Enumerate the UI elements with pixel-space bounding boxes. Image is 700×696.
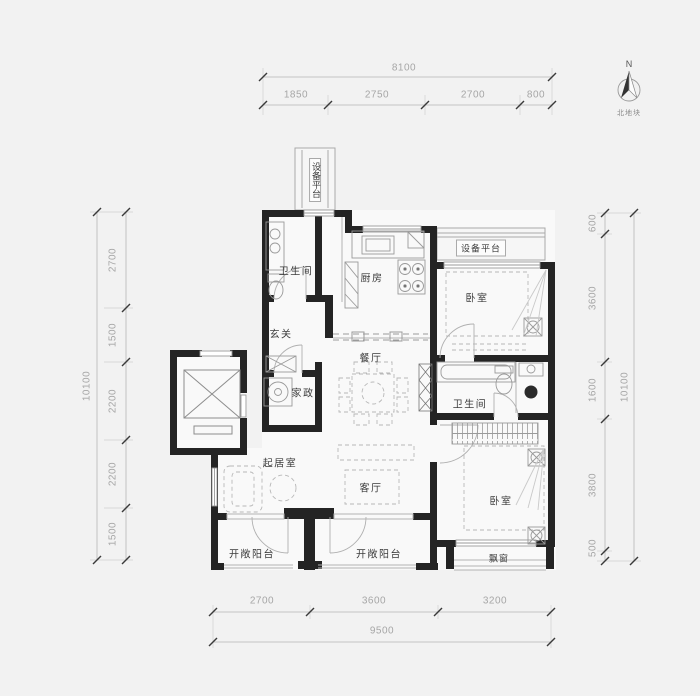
dim-left-seg-5: 1500 (108, 522, 119, 546)
dim-top-seg-4: 800 (527, 90, 545, 101)
dim-top-seg-3: 2700 (461, 90, 485, 101)
room-label-bedroom-2: 卧室 (490, 493, 513, 508)
dim-left-overall: 10100 (82, 371, 93, 401)
dim-top-seg-2: 2750 (365, 90, 389, 101)
room-label-kitchen: 厨房 (361, 270, 384, 285)
room-label-entry: 玄关 (270, 326, 293, 341)
room-label-balcony-right: 开敞阳台 (356, 546, 402, 561)
dim-bottom-seg-1: 2700 (250, 596, 274, 607)
room-label-equipment-platform-right: 设备平台 (456, 240, 506, 257)
dim-right-seg-2: 3600 (588, 286, 599, 310)
room-label-bathroom-1: 卫生间 (279, 263, 314, 278)
room-label-balcony-left: 开敞阳台 (229, 546, 275, 561)
room-label-housekeeping: 家政 (292, 385, 315, 400)
room-label-dining: 餐厅 (360, 350, 383, 365)
dim-top-overall: 8100 (392, 63, 416, 74)
dim-left-seg-2: 1500 (108, 323, 119, 347)
room-label-equipment-platform-top: 设备平台 (309, 158, 321, 202)
north-caption: 北地块 (617, 108, 641, 118)
dim-bottom-seg-3: 3200 (483, 596, 507, 607)
floorplan-drawing (0, 0, 700, 696)
north-arrow-icon (618, 71, 640, 101)
room-label-living-room: 客厅 (360, 480, 383, 495)
room-label-bathroom-2: 卫生间 (453, 396, 488, 411)
dim-right-overall: 10100 (620, 372, 631, 402)
dim-right-seg-4: 3800 (588, 473, 599, 497)
floorplan-page: 设备平台 卫生间 厨房 设备平台 卧室 玄关 餐厅 家政 卫生间 起居室 客厅 … (0, 0, 700, 696)
dim-bottom-overall: 9500 (370, 626, 394, 637)
north-letter: N (626, 59, 633, 69)
dim-left-seg-3: 2200 (108, 389, 119, 413)
dim-bottom-seg-2: 3600 (362, 596, 386, 607)
dim-right-seg-1: 600 (588, 214, 599, 232)
room-label-bedroom-1: 卧室 (466, 290, 489, 305)
dim-left-seg-4: 2200 (108, 462, 119, 486)
room-label-bay-window: 飘窗 (489, 552, 509, 565)
dim-top-seg-1: 1850 (284, 90, 308, 101)
dim-right-seg-3: 1600 (588, 378, 599, 402)
dim-right-seg-5: 500 (588, 539, 599, 557)
room-label-sitting-room: 起居室 (263, 455, 298, 470)
dim-left-seg-1: 2700 (108, 248, 119, 272)
